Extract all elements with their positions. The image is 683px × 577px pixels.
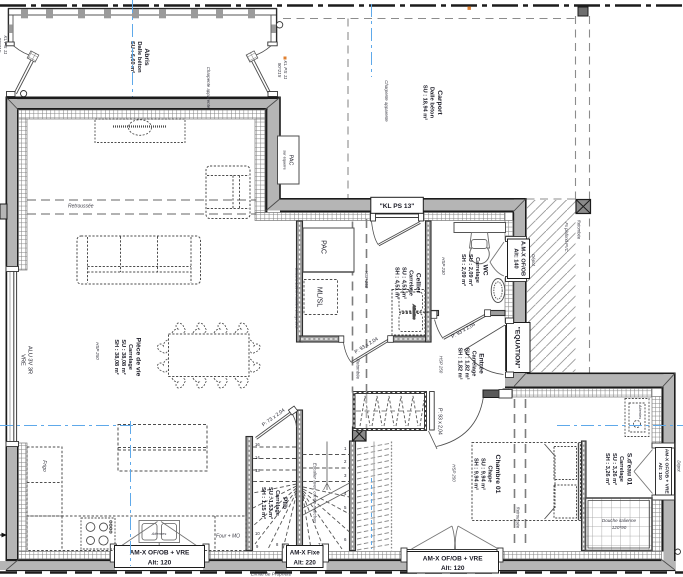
svg-text:Chape: Chape	[487, 465, 493, 482]
svg-text:Dépot: Dépot	[531, 254, 536, 266]
svg-text:SU : 1,82 m²: SU : 1,82 m²	[464, 347, 471, 379]
svg-text:HSP 250: HSP 250	[439, 356, 444, 374]
svg-text:Retroussée: Retroussée	[68, 204, 94, 210]
svg-text:P: 93 x 2,04: P: 93 x 2,04	[437, 408, 443, 435]
svg-text:A.M-X OF/OB: A.M-X OF/OB	[520, 241, 526, 276]
svg-text:Escalier avec contre-marches: Escalier avec contre-marches	[313, 463, 318, 524]
svg-text:Carport: Carport	[436, 90, 443, 115]
svg-text:Chambre 01: Chambre 01	[494, 455, 501, 494]
svg-text:Retombée: Retombée	[577, 220, 582, 240]
svg-text:Frigo: Frigo	[41, 460, 47, 472]
svg-text:ALU 3V 3R: ALU 3V 3R	[27, 346, 33, 374]
svg-text:Fx plafond PVC: Fx plafond PVC	[564, 222, 569, 252]
svg-text:120*90: 120*90	[612, 525, 627, 530]
svg-text:Charpente apparente: Charpente apparente	[384, 80, 389, 122]
svg-text:Alt: 120: Alt: 120	[148, 560, 172, 567]
svg-text:Abris: Abris	[143, 48, 150, 66]
svg-text:Carrelage: Carrelage	[127, 344, 133, 370]
svg-text:Four + MO: Four + MO	[216, 534, 240, 540]
svg-text:Alt: 140: Alt: 140	[513, 248, 519, 268]
svg-text:SH : 38,08 m²: SH : 38,08 m²	[113, 339, 120, 374]
svg-text:sur équerre: sur équerre	[283, 150, 287, 169]
svg-text:Alt: 110: Alt: 110	[657, 462, 663, 480]
svg-text:SH : 9,94 m²: SH : 9,94 m²	[473, 458, 480, 490]
svg-text:"EQUATION": "EQUATION"	[514, 327, 521, 369]
svg-text:Dépot: Dépot	[677, 460, 682, 472]
svg-text:PAC: PAC	[288, 155, 294, 166]
svg-text:SH : 1,15 m²: SH : 1,15 m²	[260, 487, 267, 519]
svg-text:SH : 1,82 m²: SH : 1,82 m²	[457, 347, 464, 379]
svg-text:KL PS 11: KL PS 11	[3, 36, 8, 55]
svg-text:SH : 2,09 m²: SH : 2,09 m²	[460, 254, 467, 286]
svg-text:SU : 3,26 m²: SU : 3,26 m²	[611, 453, 618, 485]
svg-text:14: 14	[255, 455, 260, 460]
svg-text:Dalle béton: Dalle béton	[136, 41, 142, 73]
svg-text:Dalle béton: Dalle béton	[429, 87, 435, 119]
svg-text:AM-X OF/OB + VRE: AM-X OF/OB + VRE	[130, 550, 190, 557]
svg-text:Carrelage: Carrelage	[474, 257, 480, 283]
svg-text:SH : 3,26 m²: SH : 3,26 m²	[604, 453, 611, 485]
svg-text:AM-X Fixe: AM-X Fixe	[290, 550, 320, 557]
svg-text:AM-X OF/OB + VRE: AM-X OF/OB + VRE	[423, 556, 483, 563]
svg-text:SU : 18,94 m²: SU : 18,94 m²	[422, 85, 429, 120]
svg-text:PAC: PAC	[320, 240, 327, 254]
svg-text:SU : 38,08 m²: SU : 38,08 m²	[120, 339, 127, 374]
svg-text:S.d'eau 01: S.d'eau 01	[626, 453, 633, 486]
svg-text:Pièce de vie: Pièce de vie	[135, 338, 142, 377]
svg-text:Douche italienne: Douche italienne	[602, 518, 637, 523]
svg-text:16: 16	[255, 442, 260, 447]
svg-text:HSP 230: HSP 230	[441, 257, 446, 275]
svg-text:90*215: 90*215	[0, 38, 2, 53]
svg-text:Attentes: Attentes	[412, 304, 417, 320]
svg-text:HSP 250: HSP 250	[364, 271, 369, 289]
svg-text:Entrée: Entrée	[478, 353, 485, 374]
svg-text:ML/SL: ML/SL	[316, 287, 323, 307]
svg-text:SU : 2,09 m²: SU : 2,09 m²	[467, 254, 474, 286]
svg-text:Carrelage: Carrelage	[618, 456, 624, 482]
svg-text:Carrelage: Carrelage	[408, 270, 414, 296]
svg-text:Carrelage: Carrelage	[274, 490, 280, 516]
svg-text:SU : 4,51 m²: SU : 4,51 m²	[401, 267, 408, 299]
svg-text:Attentes: Attentes	[151, 531, 167, 536]
svg-text:Retroussée: Retroussée	[516, 507, 521, 529]
svg-text:Cellier: Cellier	[415, 273, 422, 294]
svg-text:"KL PS 13": "KL PS 13"	[380, 203, 415, 210]
svg-text:Carrelage: Carrelage	[471, 351, 477, 377]
svg-text:10: 10	[255, 531, 260, 536]
svg-text:KL PS 11: KL PS 11	[283, 61, 288, 80]
svg-text:90*215: 90*215	[277, 63, 282, 78]
svg-text:VRE: VRE	[20, 354, 26, 366]
svg-text:SU : 9,94 m²: SU : 9,94 m²	[480, 458, 487, 490]
svg-text:Alt: 120: Alt: 120	[441, 565, 465, 572]
svg-text:AM-X OF/OB + VRE: AM-X OF/OB + VRE	[664, 449, 670, 495]
svg-text:Plib: Plib	[281, 497, 288, 509]
svg-text:Cloisons 1,80 m / verrière cha: Cloisons 1,80 m / verrière charge devt	[295, 268, 299, 330]
svg-text:Attentes: Attentes	[638, 404, 643, 419]
svg-text:13: 13	[255, 468, 260, 473]
svg-text:Limite de Propriété: Limite de Propriété	[251, 572, 292, 577]
svg-text:Alt: 220: Alt: 220	[294, 560, 317, 567]
svg-text:WC: WC	[482, 265, 489, 276]
svg-text:HSP 250: HSP 250	[95, 342, 100, 360]
svg-text:Charpente apparente: Charpente apparente	[206, 67, 211, 109]
svg-text:Retombée: Retombée	[356, 359, 361, 380]
svg-text:SU : 1,53 m²: SU : 1,53 m²	[267, 487, 274, 519]
svg-text:SH : 4,51 m²: SH : 4,51 m²	[394, 267, 401, 299]
svg-text:HSP 250: HSP 250	[452, 464, 457, 482]
